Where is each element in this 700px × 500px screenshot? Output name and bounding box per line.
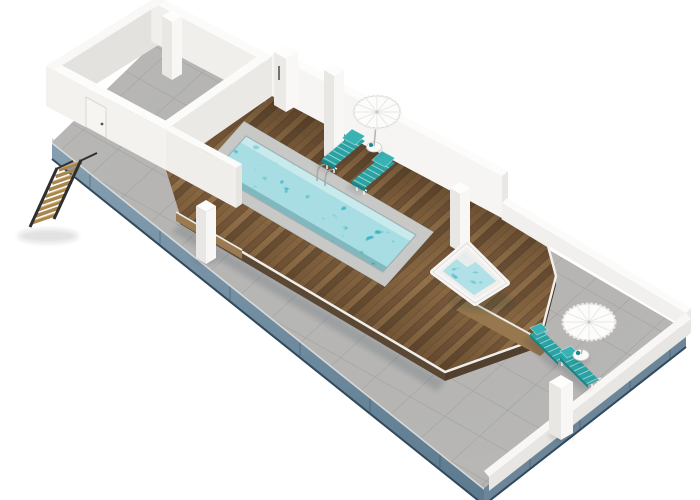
stairs-shadow	[18, 229, 78, 243]
door-handle	[101, 123, 104, 126]
rooftop-render	[0, 0, 700, 500]
parasol-hub	[375, 110, 378, 113]
terrace-pillar-west	[194, 200, 218, 264]
corner-column	[162, 10, 182, 80]
wall-pier	[274, 45, 298, 112]
isometric-scene	[0, 0, 700, 500]
wall-extension-cap	[236, 164, 242, 208]
cup	[576, 351, 580, 355]
cup	[369, 143, 373, 147]
parasol-hub	[587, 320, 590, 323]
terrace-pillar-south	[548, 375, 574, 440]
